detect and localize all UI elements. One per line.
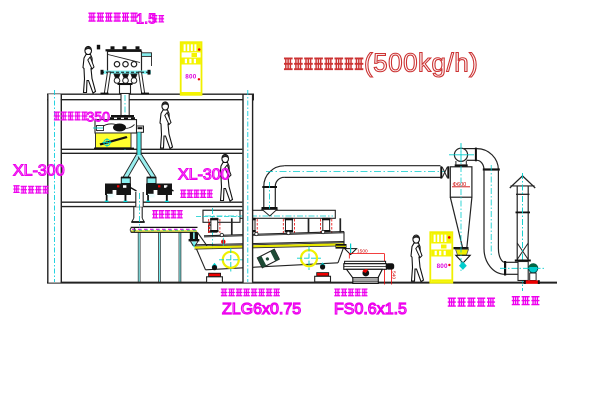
svg-text:XL-300: XL-300 (178, 167, 230, 184)
svg-text:XL-300: XL-300 (13, 163, 65, 180)
svg-text:FS0.6x1.5: FS0.6x1.5 (334, 301, 407, 318)
svg-text:ZLG6x0.75: ZLG6x0.75 (222, 301, 301, 318)
svg-text:(500kg/h): (500kg/h) (364, 48, 478, 78)
svg-text:350: 350 (87, 109, 111, 125)
svg-text:1500: 1500 (357, 249, 368, 255)
svg-text:800: 800 (185, 74, 196, 81)
svg-text:540: 540 (391, 271, 397, 279)
svg-text:800: 800 (437, 263, 448, 270)
